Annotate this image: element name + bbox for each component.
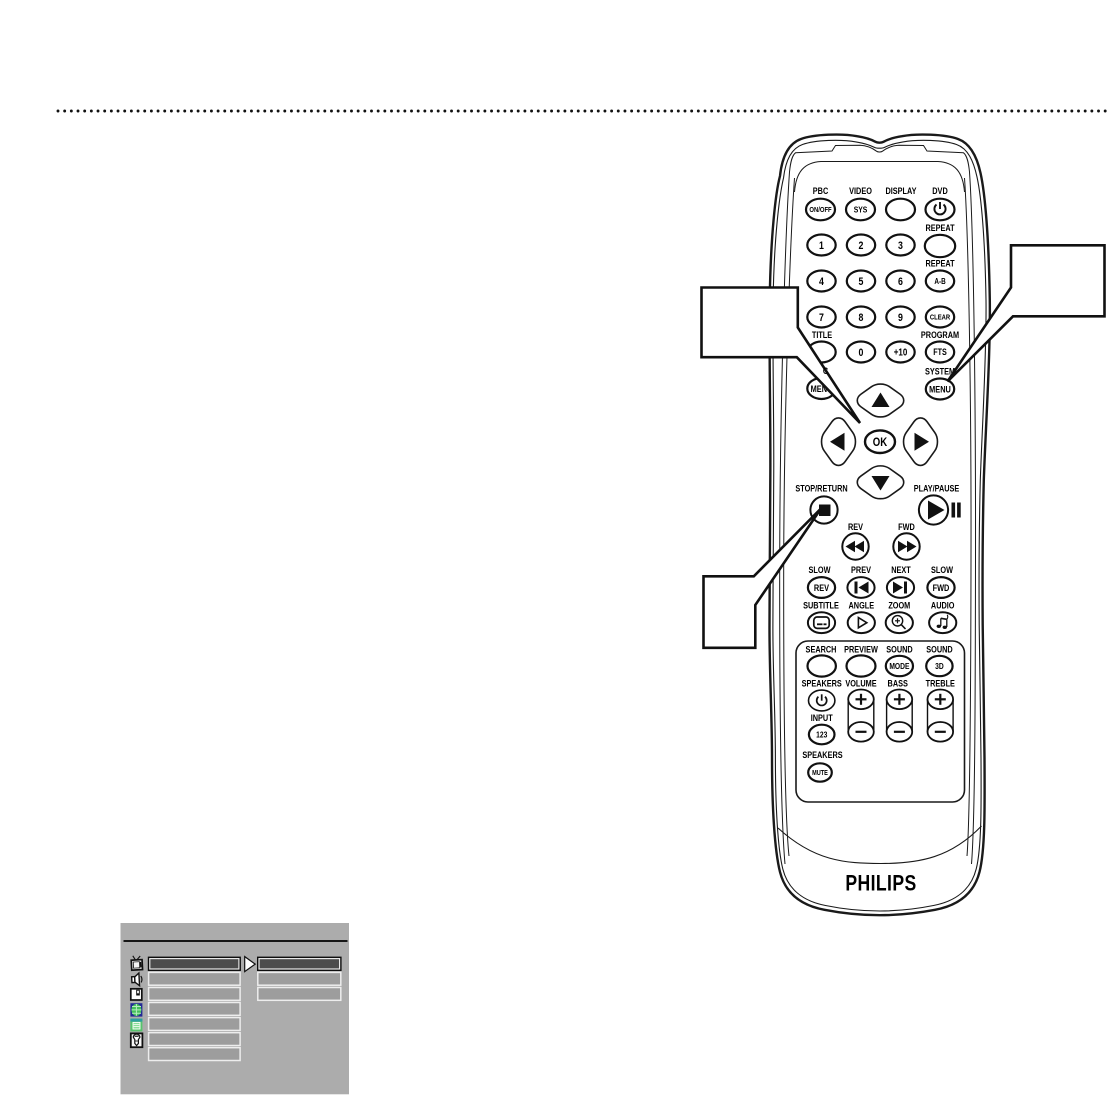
svg-text:MUTE: MUTE [812, 769, 828, 777]
svg-text:DISPLAY: DISPLAY [885, 185, 916, 196]
svg-text:ON/OFF: ON/OFF [809, 207, 831, 215]
svg-text:SOUND: SOUND [886, 644, 912, 655]
svg-text:SYS: SYS [854, 205, 868, 215]
svg-text:FWD: FWD [933, 582, 950, 593]
svg-text:BASS: BASS [888, 678, 909, 689]
svg-text:REPEAT: REPEAT [925, 258, 955, 269]
svg-text:8: 8 [859, 312, 864, 324]
svg-text:SEARCH: SEARCH [806, 644, 837, 655]
svg-text:AUDIO: AUDIO [931, 600, 955, 611]
svg-text:MODE: MODE [889, 661, 909, 671]
svg-text:INPUT: INPUT [811, 712, 834, 723]
svg-text:SUBTITLE: SUBTITLE [803, 600, 839, 611]
svg-text:+10: +10 [894, 347, 908, 358]
svg-text:C: C [823, 365, 828, 376]
svg-text:STOP/RETURN: STOP/RETURN [795, 483, 847, 494]
svg-text:3: 3 [898, 240, 903, 252]
svg-text:VOLUME: VOLUME [845, 678, 877, 689]
svg-text:1: 1 [819, 240, 824, 252]
svg-text:4: 4 [819, 276, 824, 288]
svg-text:PHILIPS: PHILIPS [845, 872, 916, 896]
svg-text:ZOOM: ZOOM [888, 600, 910, 611]
svg-text:PLAY/PAUSE: PLAY/PAUSE [914, 483, 960, 494]
svg-text:FWD: FWD [898, 521, 915, 532]
svg-text:5: 5 [859, 276, 864, 288]
svg-text:2: 2 [859, 240, 864, 252]
svg-text:REPEAT: REPEAT [925, 222, 955, 233]
svg-text:A-B: A-B [934, 276, 945, 286]
svg-text:0: 0 [859, 347, 864, 359]
svg-text:PREVIEW: PREVIEW [844, 644, 878, 655]
svg-text:REV: REV [848, 521, 863, 532]
svg-text:FTS: FTS [933, 348, 947, 358]
svg-text:CLEAR: CLEAR [930, 314, 951, 322]
svg-text:NEXT: NEXT [891, 564, 911, 575]
svg-text:123: 123 [816, 730, 827, 740]
svg-text:PROGRAM: PROGRAM [921, 329, 959, 340]
svg-text:OK: OK [873, 436, 888, 449]
svg-text:9: 9 [898, 312, 903, 324]
svg-text:DVD: DVD [932, 185, 947, 196]
svg-text:SOUND: SOUND [926, 644, 952, 655]
svg-text:MENU: MENU [929, 383, 951, 394]
svg-text:PBC: PBC [813, 185, 828, 196]
svg-text:VIDEO: VIDEO [849, 185, 872, 196]
svg-text:PREV: PREV [851, 564, 871, 575]
svg-text:7: 7 [819, 312, 824, 324]
svg-text:SLOW: SLOW [931, 564, 953, 575]
svg-text:ANGLE: ANGLE [849, 600, 875, 611]
svg-text:6: 6 [898, 276, 903, 288]
svg-text:TITLE: TITLE [812, 329, 833, 340]
svg-text:3D: 3D [935, 661, 944, 671]
svg-text:TREBLE: TREBLE [926, 678, 956, 689]
svg-text:SPEAKERS: SPEAKERS [802, 749, 843, 760]
svg-text:SLOW: SLOW [809, 564, 831, 575]
svg-text:REV: REV [814, 582, 830, 593]
svg-text:SPEAKERS: SPEAKERS [802, 678, 843, 689]
